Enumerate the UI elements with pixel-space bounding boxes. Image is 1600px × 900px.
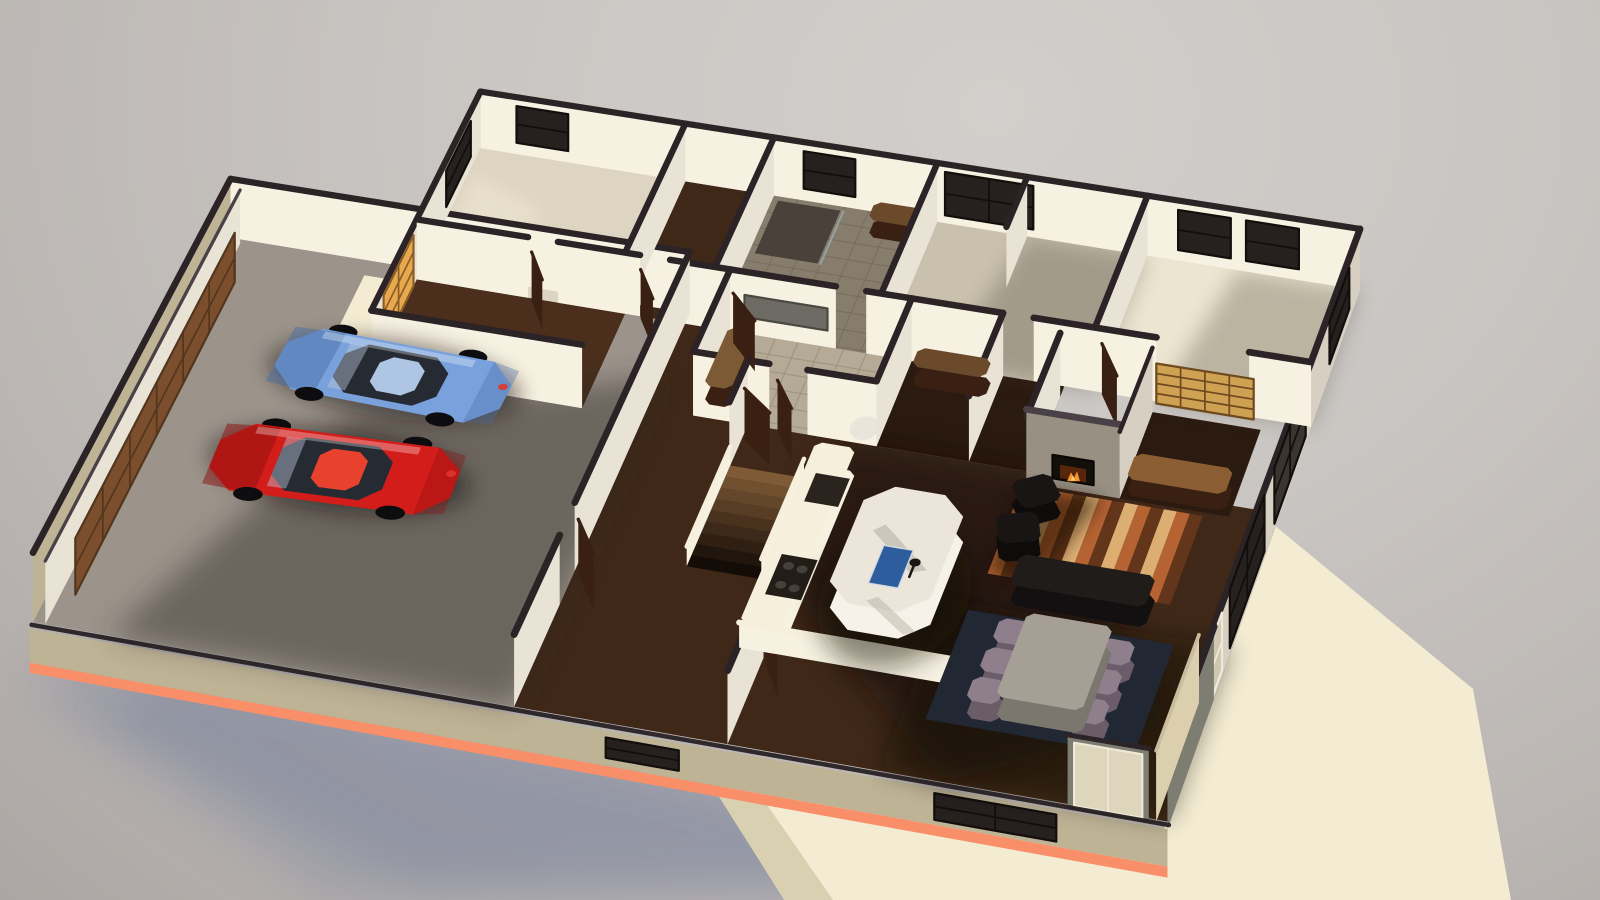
3d-floorplan-viewport[interactable]: 3D dollhouse-view architectural renderin… bbox=[0, 0, 1600, 900]
armchair-top bbox=[996, 512, 1040, 544]
dollhouse-render bbox=[0, 0, 1600, 900]
